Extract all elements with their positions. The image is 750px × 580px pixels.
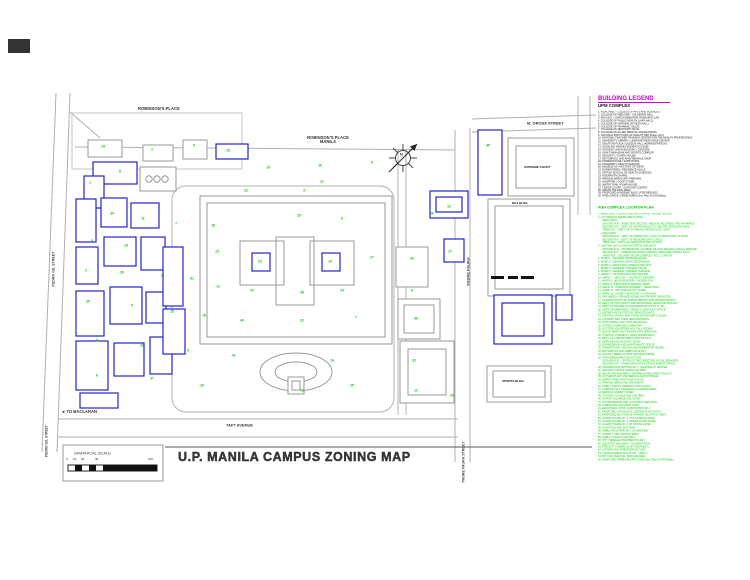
- zone-marker: 38: [300, 291, 304, 294]
- zone-marker: 2: [85, 269, 87, 272]
- zone-marker: 3: [187, 349, 189, 352]
- zone-marker: 6: [96, 374, 98, 377]
- page-title: U.P. MANILA CAMPUS ZONING MAP: [178, 450, 411, 464]
- zone-marker: 8: [119, 170, 121, 173]
- zone-marker: 21: [320, 180, 324, 183]
- zone-marker: 30: [430, 212, 434, 215]
- building-legend: BUILDING LEGEND UPM COMPLEX 1. RIZAL HAL…: [598, 96, 750, 476]
- zone-marker: 12: [447, 205, 451, 208]
- zone-marker: 1: [89, 181, 91, 184]
- supreme-court-label: SUPREME COURT: [524, 166, 550, 169]
- legend-pgh-list: 1. EMERGENCY ROOM COMPLEX (TRIAGE, TRAUM…: [598, 213, 750, 462]
- zone-marker: 9: [161, 274, 163, 277]
- zone-marker: 36: [414, 317, 418, 320]
- padre-faura-label: PADRE FAURA: [467, 257, 471, 285]
- zone-marker: 10: [266, 166, 270, 169]
- zone-marker: 3: [303, 189, 305, 192]
- zone-marker: 12: [414, 389, 418, 392]
- zone-marker: 7: [355, 316, 357, 319]
- scale-tick: 20: [81, 458, 84, 461]
- zone-marker: 14: [101, 145, 105, 148]
- zone-marker: 11: [95, 339, 98, 342]
- zone-marker: 10: [328, 260, 332, 263]
- scale-tick: 40: [95, 458, 98, 461]
- zone-marker: 28: [170, 310, 174, 313]
- m-orosa-street-label: M. OROSA STREET: [527, 122, 564, 126]
- boundary-dashes: [491, 276, 534, 279]
- pedro-gil-street-label: PEDRO GIL STREET: [52, 252, 56, 287]
- zone-marker: 6: [341, 217, 343, 220]
- zone-marker: 22: [244, 189, 248, 192]
- legend-pgh-heading: PGH COMPLEX LOCATOR PLAN: [598, 206, 654, 210]
- zone-marker: 29: [140, 344, 144, 347]
- scale-bar: [63, 445, 163, 481]
- zone-marker: 26: [120, 271, 124, 274]
- zone-marker: 11: [141, 217, 144, 220]
- corner-artifact: [8, 39, 30, 53]
- legend-upm-heading: UPM COMPLEX: [598, 104, 630, 108]
- zone-marker: 20: [318, 164, 322, 167]
- zone-marker: 31: [190, 277, 194, 280]
- pedro-gil-street-label-corner: PEDRO GIL STREET: [45, 425, 48, 457]
- zone-marker: 45: [486, 144, 490, 147]
- zone-marker: 7: [175, 222, 177, 225]
- taft-avenue-label: TAFT AVENUE: [226, 424, 253, 428]
- legend-title: BUILDING LEGEND: [598, 96, 670, 103]
- scale-tick: 10: [73, 458, 76, 461]
- zone-marker: 35: [86, 300, 90, 303]
- zone-marker: 40: [240, 319, 244, 322]
- to-baclaran-text: TO BACLARAN: [66, 410, 97, 414]
- zone-marker: 20: [250, 289, 254, 292]
- zone-marker: 37: [150, 377, 154, 380]
- west-arrow-icon: ◄: [61, 410, 65, 414]
- zone-marker: 43: [300, 389, 304, 392]
- zone-marker: 24: [340, 289, 344, 292]
- zone-marker: 41: [232, 354, 236, 357]
- compass-north-letter: N: [400, 153, 403, 157]
- legend-upm-list: 1. RIZAL HALL - COLLEGE OF ARTS AND SCIE…: [598, 111, 749, 198]
- sports-building-label: SPORTS BLDG.: [502, 380, 525, 383]
- zone-marker: 15: [215, 250, 219, 253]
- north-arrow-icon: [389, 144, 417, 172]
- zone-marker: 13: [216, 285, 220, 288]
- padre-faura-street-label: PADRE FAURA STREET: [462, 442, 466, 483]
- robinsons-manila-line2: MANILA: [300, 140, 356, 144]
- zone-marker: 9: [193, 144, 195, 147]
- zone-marker: 22: [300, 319, 304, 322]
- robinsons-place-manila-label: ROBINSON'S PLACE MANILA: [300, 136, 356, 144]
- zone-marker: 17: [448, 250, 452, 253]
- zone-marker: 25: [350, 384, 354, 387]
- to-baclaran-label: ◄ TO BACLARAN: [61, 410, 97, 414]
- zone-marker: 32: [412, 359, 416, 362]
- scale-tick: 100: [148, 458, 153, 461]
- zone-marker: 5: [371, 161, 373, 164]
- zone-marker: 27: [370, 256, 374, 259]
- zone-marker: 23: [258, 260, 262, 263]
- zone-marker: 4: [91, 239, 93, 242]
- zone-marker: 16: [226, 149, 230, 152]
- zone-marker: 14: [330, 359, 334, 362]
- legend-item: 30. OPEN SPACE / GREEN AREA (Ord. Plan-0…: [598, 195, 749, 198]
- zone-marker: 39: [450, 394, 454, 397]
- zone-marker: 16: [202, 314, 206, 317]
- zone-marker: 18: [211, 224, 215, 227]
- zone-marker: 19: [124, 244, 128, 247]
- scale-tick: 0: [66, 458, 68, 461]
- legend-item: 65. PROPOSED GREEN BUFFER ZONE (Ord. Pla…: [598, 459, 750, 462]
- robinsons-place-label: ROBINSON'S PLACE: [138, 107, 180, 111]
- zoning-map-canvas: ROBINSON'S PLACE ROBINSON'S PLACE MANILA…: [0, 0, 750, 580]
- zone-marker: 34: [110, 212, 114, 215]
- zone-marker: 33: [410, 257, 414, 260]
- zone-marker: 5: [131, 304, 133, 307]
- zone-marker: 19: [200, 384, 204, 387]
- zone-marker: 8: [411, 289, 413, 292]
- graphical-scale-label: GRAPHICAL SCALE: [74, 452, 111, 456]
- doj-building-label: DOJ BLDG.: [512, 202, 528, 205]
- zone-marker: 25: [297, 214, 301, 217]
- zone-marker: 2: [151, 148, 153, 151]
